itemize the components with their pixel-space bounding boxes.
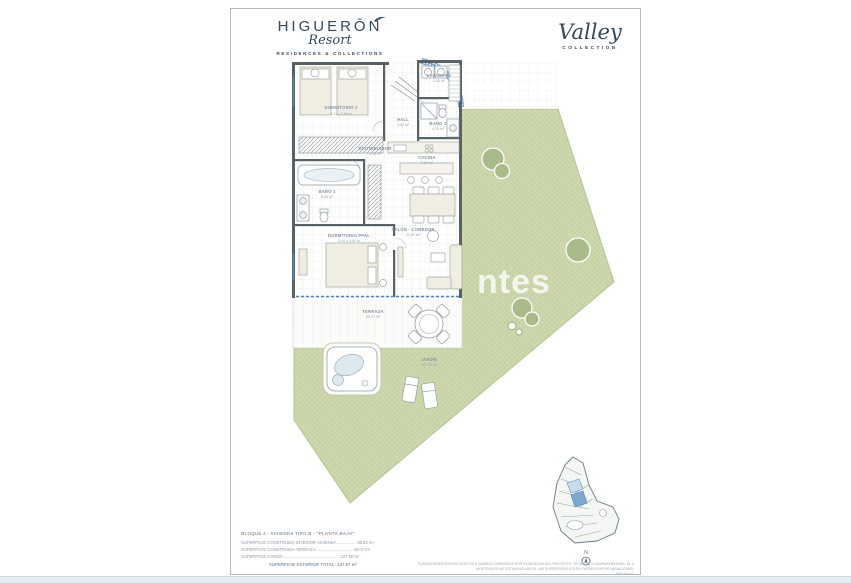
surface-legend: BLOQUE 4 - VIVIENDA TIPO B - "PLANTA BAJ…	[241, 531, 411, 567]
svg-text:9.68 m²: 9.68 m²	[421, 161, 434, 165]
dining-set	[410, 187, 455, 223]
legend-line: SUPERFICIE JARDÍN ......................…	[241, 553, 411, 560]
svg-text:2.20 m²: 2.20 m²	[433, 79, 446, 83]
label-terraza: TERRAZA	[362, 309, 383, 314]
watermark-text: ntes	[477, 265, 551, 299]
label-dormitorio2: DORMITORIO 2	[324, 105, 358, 110]
svg-text:4.32 m²: 4.32 m²	[397, 123, 410, 127]
svg-text:N: N	[584, 550, 588, 556]
svg-text:21.87 m²: 21.87 m²	[406, 233, 421, 237]
site-outline	[553, 457, 619, 543]
plunge-pool	[323, 343, 381, 395]
legend-line: SUPERFICIE CONSTRUIDA TERRAZA ..........…	[241, 546, 411, 553]
disclaimer-line: PLANOS ORIENTATIVOS SUJETOS A CAMBIOS DE…	[418, 562, 634, 567]
label-jardin: JARDÍN	[421, 357, 438, 362]
label-hall: HALL	[397, 117, 409, 122]
svg-text:3.11 x 3.68 m: 3.11 x 3.68 m	[330, 112, 352, 116]
site-key-plan: N	[531, 455, 641, 571]
disclaimer: PLANOS ORIENTATIVOS SUJETOS A CAMBIOS DE…	[418, 562, 634, 576]
plan-page: HIGUERŌN Resort RESIDENCES & COLLECTIONS…	[230, 8, 641, 575]
legend-title: BLOQUE 4 - VIVIENDA TIPO B - "PLANTA BAJ…	[241, 531, 411, 536]
label-bano2: BAÑO 2	[429, 121, 446, 126]
shaft-stairs	[449, 65, 460, 101]
label-lavadero: LAVADERO	[427, 73, 452, 78]
disclaimer-line: MOSTRADOS NO ESTÁN INCLUIDOS. LAS SUPERF…	[418, 567, 634, 572]
svg-text:40.07 m²: 40.07 m²	[366, 315, 381, 319]
revision-note: REV.02 A.C	[418, 572, 634, 576]
label-distribuidor: DISTRIBUIDOR	[359, 146, 392, 151]
label-dormppal: DORMITORIO PPAL	[328, 233, 370, 238]
svg-text:3.40 x 4.01 m: 3.40 x 4.01 m	[338, 239, 360, 243]
svg-text:107.50 m²: 107.50 m²	[421, 363, 438, 367]
label-bano1: BAÑO 1	[318, 189, 335, 194]
legend-total: SUPERFICIE EXTERIOR TOTAL: 147.57 m²	[241, 562, 411, 567]
svg-text:5.08 m²: 5.08 m²	[321, 195, 334, 199]
label-cocina: COCINA	[418, 155, 436, 160]
svg-text:2.56 m²: 2.56 m²	[369, 152, 382, 156]
vestidor-wardrobe	[368, 165, 381, 219]
legend-line: SUPERFICIE CONSTRUIDA INTERIOR VIVIENDA …	[241, 539, 411, 546]
svg-text:4.15 m²: 4.15 m²	[432, 127, 445, 131]
label-salon: SALÓN - COMEDOR	[391, 227, 434, 232]
